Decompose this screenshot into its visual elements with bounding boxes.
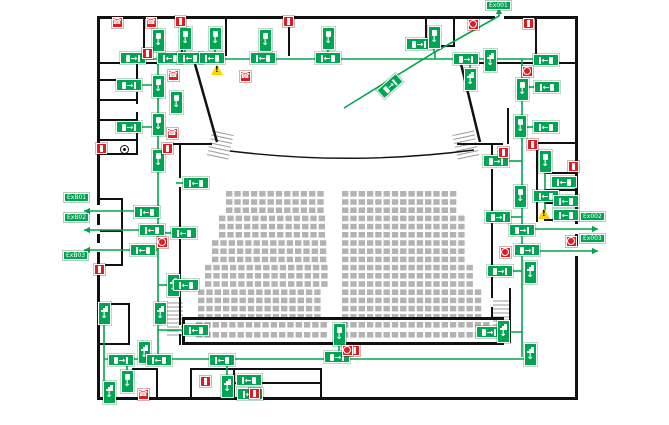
- seat: [442, 191, 448, 197]
- seat: [467, 306, 473, 312]
- seat: [450, 199, 456, 205]
- seat: [408, 207, 414, 213]
- seat: [294, 232, 300, 238]
- seat: [392, 265, 398, 271]
- seat: [281, 289, 287, 295]
- seat: [375, 273, 381, 279]
- arrow-left-glyph: ←: [245, 377, 252, 384]
- seat: [305, 281, 311, 287]
- seat: [247, 273, 253, 279]
- seat: [306, 289, 312, 295]
- seat: [375, 207, 381, 213]
- arrow-left-glyph: ←: [560, 179, 567, 186]
- seat: [433, 265, 439, 271]
- seat: [408, 240, 414, 246]
- arrow-down-glyph: ↓: [324, 37, 332, 45]
- seat: [442, 289, 448, 295]
- call-point-glyph: [146, 50, 149, 57]
- seat: [245, 248, 251, 254]
- seat: [313, 273, 319, 279]
- door-glyph: [527, 227, 529, 234]
- seat: [458, 332, 464, 338]
- seat: [400, 232, 406, 238]
- route-label: ExB01: [64, 193, 89, 202]
- exit-sign-down: ↓: [152, 113, 165, 136]
- seat: [367, 281, 373, 287]
- seat: [359, 248, 365, 254]
- wall: [97, 397, 578, 400]
- seat: [234, 199, 240, 205]
- running-man-glyph: [549, 124, 553, 131]
- seat: [285, 224, 291, 230]
- call-point-glyph: [502, 149, 505, 156]
- seat: [359, 306, 365, 312]
- seat: [312, 240, 318, 246]
- seat: [392, 240, 398, 246]
- seat: [450, 332, 456, 338]
- seat: [206, 298, 212, 304]
- seat: [433, 216, 439, 222]
- arrow-down-glyph: ↓: [430, 36, 438, 44]
- seat: [467, 332, 473, 338]
- seat: [433, 257, 439, 263]
- exit-sign-stairs: ↓: [497, 320, 510, 343]
- seat: [262, 332, 268, 338]
- exit-sign-left: ←: [315, 52, 341, 64]
- door-glyph: [503, 214, 505, 221]
- seat: [350, 322, 356, 328]
- seat: [298, 306, 304, 312]
- exit-sign-left: ←: [146, 354, 172, 366]
- seat: [288, 281, 294, 287]
- phone-glyph: ☎: [240, 72, 250, 80]
- seat: [342, 224, 348, 230]
- arrow-left-glyph: ←: [324, 55, 331, 62]
- seat: [417, 257, 423, 263]
- seat: [359, 257, 365, 263]
- exit-sign-stairs: ↓: [221, 375, 234, 398]
- seat: [294, 224, 300, 230]
- seat: [392, 289, 398, 295]
- seat: [280, 265, 286, 271]
- seat: [254, 248, 260, 254]
- seat: [367, 224, 373, 230]
- seat: [296, 273, 302, 279]
- seat: [244, 232, 250, 238]
- seat: [268, 191, 274, 197]
- running-man-glyph: [459, 56, 463, 63]
- seat: [417, 332, 423, 338]
- exit-sign-left: ←: [250, 52, 276, 64]
- door-glyph: [501, 158, 503, 165]
- seat: [367, 232, 373, 238]
- exit-sign-right: →: [509, 224, 535, 236]
- exit-arrow: [84, 227, 90, 233]
- seat: [458, 232, 464, 238]
- seat: [417, 216, 423, 222]
- arrow-right-glyph: →: [498, 268, 505, 275]
- exit-sign-stairs: ↓: [103, 381, 116, 404]
- door-glyph: [215, 357, 217, 364]
- seat: [277, 224, 283, 230]
- arrow-down-glyph: ↓: [154, 85, 162, 93]
- seat: [417, 240, 423, 246]
- seat: [375, 265, 381, 271]
- floor-plan: →←←←←←→→←↓↓↓↓↓↓↓↓↓←→→↓↓→↓↓←←←←←↓←↓←→↓↓←←…: [0, 0, 669, 425]
- seat: [442, 306, 448, 312]
- seat: [375, 332, 381, 338]
- arrow-down-glyph: ↓: [172, 101, 180, 109]
- seat: [296, 265, 302, 271]
- seat: [281, 306, 287, 312]
- exit-sign-left: ←: [209, 354, 235, 366]
- seat: [320, 240, 326, 246]
- door-opening: [97, 205, 100, 214]
- seat: [248, 298, 254, 304]
- seat: [450, 248, 456, 254]
- seat: [254, 322, 260, 328]
- stairs-glyph: [141, 346, 148, 351]
- seat: [229, 322, 235, 328]
- seat: [321, 322, 327, 328]
- seat: [475, 306, 481, 312]
- arrow-down-glyph: ↓: [516, 195, 524, 203]
- seat: [384, 289, 390, 295]
- seat: [375, 257, 381, 263]
- stairs-glyph: [527, 266, 534, 271]
- warning-icon: [211, 64, 223, 75]
- seat: [359, 191, 365, 197]
- arrow-left-glyph: ←: [192, 327, 199, 334]
- exit-sign-down: ↓: [516, 78, 529, 101]
- seat: [285, 216, 291, 222]
- seat: [236, 232, 242, 238]
- seat: [392, 273, 398, 279]
- fire-phone-icon: ☎: [168, 70, 179, 81]
- exit-sign-left: ←: [183, 177, 209, 189]
- seat: [425, 216, 431, 222]
- exit-sign-down: ↓: [514, 185, 527, 208]
- seat: [302, 232, 308, 238]
- exit-sign-left: ←: [553, 209, 579, 221]
- seat: [244, 216, 250, 222]
- seat: [212, 257, 218, 263]
- seat: [400, 224, 406, 230]
- seat: [384, 207, 390, 213]
- stair-tread: [207, 154, 229, 159]
- arrow-down-glyph: ↓: [100, 312, 108, 320]
- seat: [306, 306, 312, 312]
- seat: [219, 224, 225, 230]
- seat: [271, 265, 277, 271]
- seat: [247, 281, 253, 287]
- seat: [313, 281, 319, 287]
- seat: [450, 265, 456, 271]
- seat: [392, 248, 398, 254]
- arrow-left-glyph: ←: [148, 227, 155, 234]
- seat: [458, 306, 464, 312]
- seat: [367, 298, 373, 304]
- seat: [450, 306, 456, 312]
- extinguisher-glyph: [567, 237, 575, 245]
- seat: [417, 265, 423, 271]
- seat: [433, 322, 439, 328]
- seat: [303, 257, 309, 263]
- wall: [97, 139, 137, 141]
- seat: [392, 298, 398, 304]
- seat: [400, 191, 406, 197]
- extinguisher-glyph: [343, 346, 351, 354]
- seat: [205, 281, 211, 287]
- exit-arrow: [592, 248, 598, 254]
- seat: [425, 248, 431, 254]
- call-point-glyph: [527, 20, 530, 27]
- seat: [288, 273, 294, 279]
- stairs-glyph: [500, 325, 507, 330]
- seat: [264, 298, 270, 304]
- seat: [212, 248, 218, 254]
- seat: [234, 191, 240, 197]
- fire-phone-icon: ☎: [112, 17, 123, 28]
- wall-diagonal: [195, 64, 217, 142]
- seat: [212, 240, 218, 246]
- seat: [295, 248, 301, 254]
- exit-sign-stairs: ↓: [98, 302, 111, 325]
- seat: [392, 332, 398, 338]
- seat: [433, 248, 439, 254]
- seat: [400, 332, 406, 338]
- seat: [442, 224, 448, 230]
- seat: [433, 207, 439, 213]
- running-man-glyph: [520, 247, 524, 254]
- stairs: [453, 131, 480, 159]
- running-man-glyph: [193, 55, 197, 62]
- seat: [219, 232, 225, 238]
- seat: [255, 273, 261, 279]
- seat: [425, 281, 431, 287]
- seat: [317, 199, 323, 205]
- seat: [238, 273, 244, 279]
- seat: [220, 240, 226, 246]
- wall: [97, 99, 137, 101]
- seat: [321, 273, 327, 279]
- seat: [229, 248, 235, 254]
- exit-sign-left: ←: [134, 206, 160, 218]
- seat: [417, 273, 423, 279]
- seat: [417, 289, 423, 295]
- seat: [384, 224, 390, 230]
- seat: [408, 332, 414, 338]
- seat: [417, 281, 423, 287]
- stairs-glyph: [101, 307, 108, 312]
- running-man-glyph: [330, 354, 334, 361]
- seat: [425, 240, 431, 246]
- seat: [408, 322, 414, 328]
- seat: [301, 199, 307, 205]
- seat: [198, 298, 204, 304]
- seat: [289, 306, 295, 312]
- seat: [375, 306, 381, 312]
- seat: [467, 273, 473, 279]
- seat: [359, 224, 365, 230]
- seat: [220, 257, 226, 263]
- seat: [425, 273, 431, 279]
- phone-glyph: ☎: [168, 71, 178, 79]
- stairs: [207, 131, 234, 159]
- door-opening: [491, 298, 493, 307]
- seat: [384, 257, 390, 263]
- seat: [417, 322, 423, 328]
- extinguisher-glyph: [158, 238, 166, 246]
- seat: [313, 265, 319, 271]
- seat: [238, 332, 244, 338]
- extinguisher-icon: [522, 66, 533, 77]
- extinguisher-glyph: [523, 67, 531, 75]
- seat: [317, 191, 323, 197]
- seat: [271, 281, 277, 287]
- door-glyph: [321, 55, 323, 62]
- door-glyph: [559, 198, 561, 205]
- door-glyph: [242, 377, 244, 384]
- seat: [223, 289, 229, 295]
- seat: [231, 289, 237, 295]
- door-glyph: [136, 247, 138, 254]
- wall: [97, 16, 578, 19]
- extinguisher-icon: [468, 19, 479, 30]
- seat: [367, 199, 373, 205]
- running-man-glyph: [567, 179, 571, 186]
- arrow-down-glyph: ↓: [516, 125, 524, 133]
- seat: [408, 199, 414, 205]
- seat: [271, 273, 277, 279]
- seat: [458, 265, 464, 271]
- seat: [359, 265, 365, 271]
- seat: [342, 265, 348, 271]
- stairs-glyph: [224, 380, 231, 385]
- seat: [450, 298, 456, 304]
- seat: [375, 248, 381, 254]
- seat: [400, 265, 406, 271]
- seat: [270, 248, 276, 254]
- exit-sign-down: ↓: [179, 27, 192, 50]
- stair-tread: [210, 139, 232, 144]
- seat: [467, 281, 473, 287]
- seat: [408, 191, 414, 197]
- running-man-glyph: [126, 55, 130, 62]
- seat: [359, 273, 365, 279]
- seat: [256, 289, 262, 295]
- stairs-glyph: [157, 307, 164, 312]
- seat: [312, 257, 318, 263]
- wall: [507, 108, 509, 144]
- seat: [317, 207, 323, 213]
- seat: [359, 207, 365, 213]
- seat: [256, 306, 262, 312]
- seat: [450, 191, 456, 197]
- stair-tread: [454, 139, 476, 144]
- running-man-glyph: [493, 268, 497, 275]
- call-point-icon: [527, 139, 538, 150]
- seat: [294, 216, 300, 222]
- call-point-icon: [498, 147, 509, 158]
- running-man-glyph: [155, 227, 159, 234]
- seat: [229, 332, 235, 338]
- seat: [350, 257, 356, 263]
- exit-sign-stairs: ↓: [524, 261, 537, 284]
- seat: [384, 281, 390, 287]
- seat: [408, 298, 414, 304]
- exit-sign-left: ←: [130, 244, 156, 256]
- seat: [280, 281, 286, 287]
- seat: [350, 298, 356, 304]
- running-man-glyph: [515, 227, 519, 234]
- seat: [314, 298, 320, 304]
- seat: [375, 224, 381, 230]
- call-point-glyph: [98, 266, 101, 273]
- seat: [309, 199, 315, 205]
- seat: [254, 240, 260, 246]
- seat: [359, 216, 365, 222]
- seat: [309, 207, 315, 213]
- seat: [230, 273, 236, 279]
- seat: [268, 207, 274, 213]
- seat: [240, 298, 246, 304]
- door-glyph: [179, 282, 181, 289]
- door-glyph: [189, 327, 191, 334]
- wall: [491, 145, 493, 318]
- seat: [303, 248, 309, 254]
- seat: [367, 289, 373, 295]
- exit-sign-left: ←: [199, 52, 225, 64]
- call-point-icon: [523, 18, 534, 29]
- exit-sign-left: ←: [183, 324, 209, 336]
- arrow-right-glyph: →: [520, 227, 527, 234]
- seat: [279, 332, 285, 338]
- phone-glyph: ☎: [112, 18, 122, 26]
- seat: [243, 191, 249, 197]
- seat: [254, 332, 260, 338]
- seat: [237, 257, 243, 263]
- seat: [392, 257, 398, 263]
- wall: [132, 368, 158, 370]
- exit-sign-down: ↓: [539, 150, 552, 173]
- seat: [392, 322, 398, 328]
- call-point-glyph: [204, 378, 207, 385]
- exit-sign-right: →: [514, 244, 540, 256]
- seat: [223, 298, 229, 304]
- running-man-glyph: [199, 180, 203, 187]
- seat: [262, 240, 268, 246]
- running-man-glyph: [187, 230, 191, 237]
- call-point-glyph: [287, 18, 290, 25]
- wall: [575, 16, 578, 400]
- seat: [350, 199, 356, 205]
- seat: [442, 199, 448, 205]
- seat: [243, 199, 249, 205]
- seat: [384, 306, 390, 312]
- seat: [417, 298, 423, 304]
- seat: [259, 191, 265, 197]
- extinguisher-glyph: [469, 20, 477, 28]
- running-man-glyph: [489, 158, 493, 165]
- call-point-glyph: [179, 18, 182, 25]
- seat: [279, 322, 285, 328]
- running-man-glyph: [491, 214, 495, 221]
- exit-sign-left: ←: [236, 374, 262, 386]
- seat: [359, 289, 365, 295]
- seat: [285, 232, 291, 238]
- seat: [400, 207, 406, 213]
